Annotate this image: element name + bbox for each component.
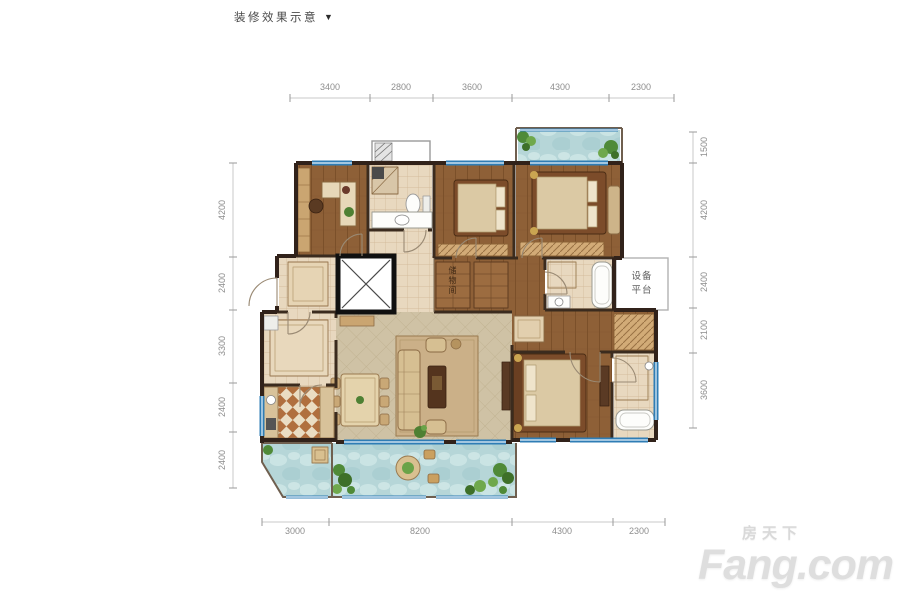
dim-right-1: 1500 <box>699 137 709 157</box>
dim-right-2: 4200 <box>699 200 709 220</box>
plan-title-text: 装修效果示意 <box>234 9 318 25</box>
plan-title[interactable]: 装修效果示意 ▼ <box>234 9 333 25</box>
washer <box>264 316 278 330</box>
chevron-down-icon: ▼ <box>324 12 333 22</box>
dim-left-1: 4200 <box>217 200 227 220</box>
fang-watermark: 房天下 Fang.com <box>698 522 898 590</box>
dim-left-2: 2400 <box>217 273 227 293</box>
equipment-platform-label: 设备平台 <box>630 270 654 299</box>
dim-top-2: 2800 <box>391 82 411 92</box>
dim-left-5: 2400 <box>217 450 227 470</box>
dim-bottom-1: 3000 <box>285 526 305 536</box>
fang-watermark-logo: Fang.com <box>698 541 898 590</box>
wardrobe <box>614 314 654 350</box>
dim-top-1: 3400 <box>320 82 340 92</box>
bath-bottomright-fixtures <box>616 356 654 430</box>
dim-right-4: 2100 <box>699 320 709 340</box>
fang-watermark-cn: 房天下 <box>742 522 898 543</box>
dim-right-5: 3600 <box>699 380 709 400</box>
dim-right-3: 2400 <box>699 272 709 292</box>
dim-top-4: 4300 <box>550 82 570 92</box>
utility-rug <box>270 320 328 376</box>
dim-top-3: 3600 <box>462 82 482 92</box>
dim-bottom-3: 4300 <box>552 526 572 536</box>
dim-bottom-2: 8200 <box>410 526 430 536</box>
entry-rug <box>288 262 328 306</box>
dim-left-3: 3300 <box>217 336 227 356</box>
dim-left-4: 2400 <box>217 397 227 417</box>
floor-plan-image <box>0 0 900 600</box>
equipment-platform: 设备平台 <box>616 258 668 310</box>
dim-top-5: 2300 <box>631 82 651 92</box>
kitchen-fixtures <box>264 387 334 438</box>
elevator <box>338 256 394 312</box>
dim-bottom-4: 2300 <box>629 526 649 536</box>
floorplan-page: 装修效果示意 ▼ 3400 2800 3600 4300 2300 4200 2… <box>0 0 900 600</box>
storage-room-label: 储物间 <box>447 266 458 296</box>
